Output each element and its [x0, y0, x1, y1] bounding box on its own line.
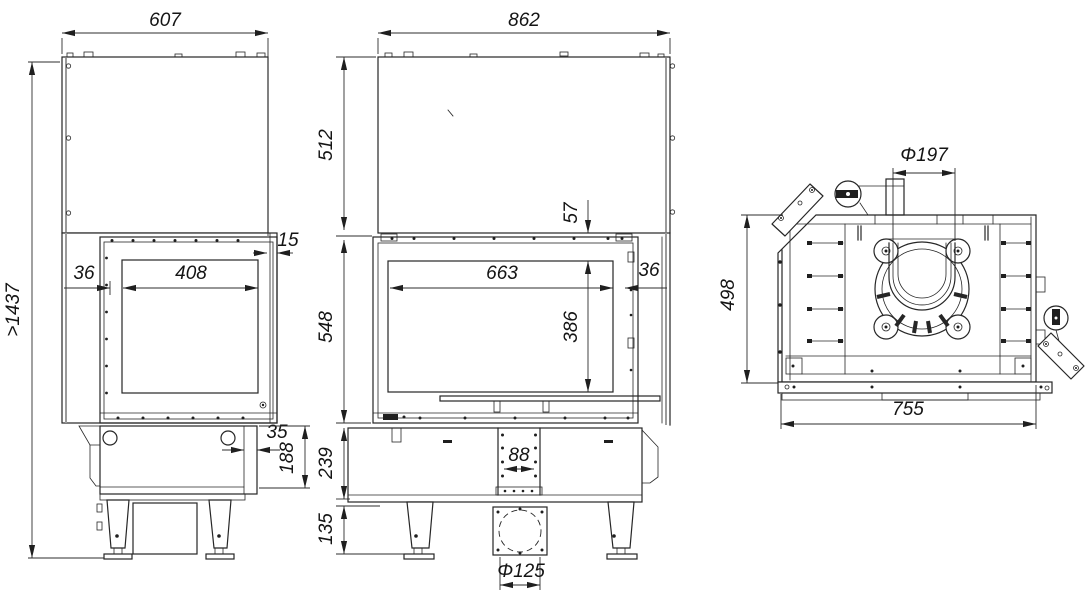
top-view: Φ197 498 755	[718, 145, 1084, 429]
drawing-canvas: 607 >1437 36 408 15 35 188	[0, 0, 1090, 610]
dim-top-overall-depth: 498	[718, 279, 739, 311]
side-firebox	[62, 233, 277, 423]
dim-front-air-inlet-diameter: Φ125	[497, 561, 545, 582]
front-hood	[378, 52, 675, 233]
front-feet	[404, 502, 637, 559]
dim-top-overall-width: 755	[892, 399, 924, 420]
dim-side-base-height: 188	[277, 442, 298, 474]
dim-front-glass-width: 663	[486, 263, 518, 284]
top-pulley-left	[835, 181, 904, 215]
front-view: 862 512 548 239 135 57 386 663 36	[316, 10, 675, 590]
front-firebox	[373, 233, 670, 425]
dim-front-firebox-height: 548	[316, 311, 337, 343]
top-chimney-duct	[886, 179, 904, 215]
dim-top-flue-diameter: Φ197	[900, 145, 949, 166]
front-base	[348, 428, 658, 502]
side-view: 607 >1437 36 408 15 35 188	[3, 10, 310, 559]
front-air-inlet-circle	[499, 510, 541, 552]
dim-front-overall-width: 862	[508, 10, 540, 31]
dim-front-glass-height: 386	[561, 311, 582, 343]
side-hood	[62, 52, 268, 233]
top-corner-bracket-right	[1038, 333, 1084, 379]
dim-side-glass-width: 408	[175, 263, 207, 284]
dim-side-overall-width: 607	[149, 10, 182, 31]
front-air-inlet-box	[493, 507, 547, 555]
dim-side-base-wall: 35	[266, 422, 288, 443]
dim-front-hood-height: 512	[316, 129, 337, 161]
side-feet	[97, 500, 234, 559]
dim-side-glass-inset: 36	[73, 263, 95, 284]
dim-side-front-offset: 15	[277, 230, 299, 251]
dim-side-overall-height: >1437	[3, 282, 24, 337]
top-flue-collar	[874, 239, 970, 339]
dim-front-frame-top: 57	[561, 201, 582, 224]
dim-front-duct-width: 88	[508, 445, 530, 466]
dim-front-glass-inset: 36	[638, 260, 660, 281]
dim-front-feet-height: 135	[316, 513, 337, 545]
front-door-latch	[383, 414, 398, 420]
dim-front-base-height: 239	[316, 447, 337, 480]
fireplace-technical-drawing: 607 >1437 36 408 15 35 188	[0, 0, 1090, 610]
side-base	[79, 426, 257, 500]
